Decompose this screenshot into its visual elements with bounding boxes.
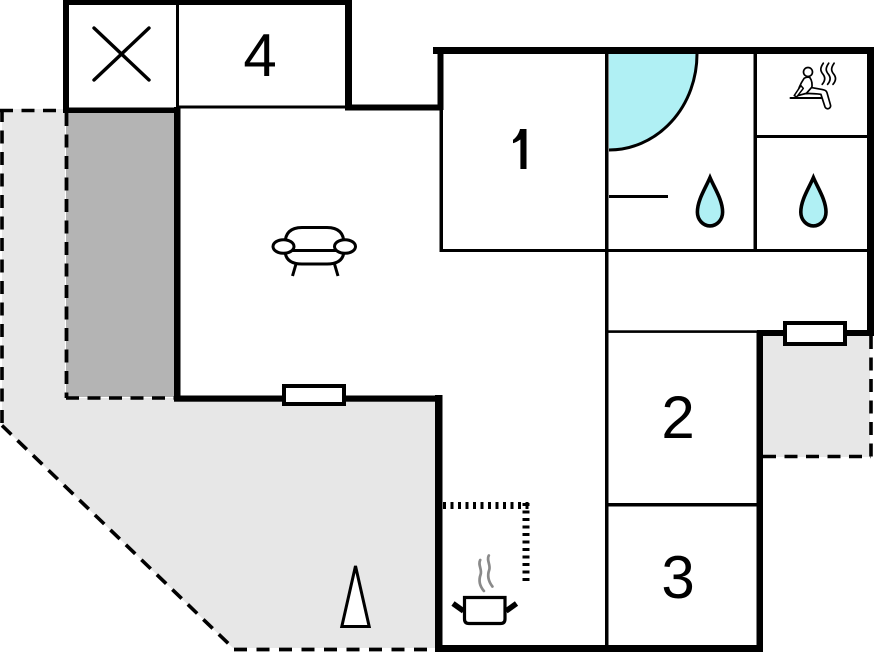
svg-text:4: 4: [243, 22, 276, 89]
svg-text:3: 3: [661, 544, 694, 611]
svg-text:2: 2: [661, 384, 694, 451]
